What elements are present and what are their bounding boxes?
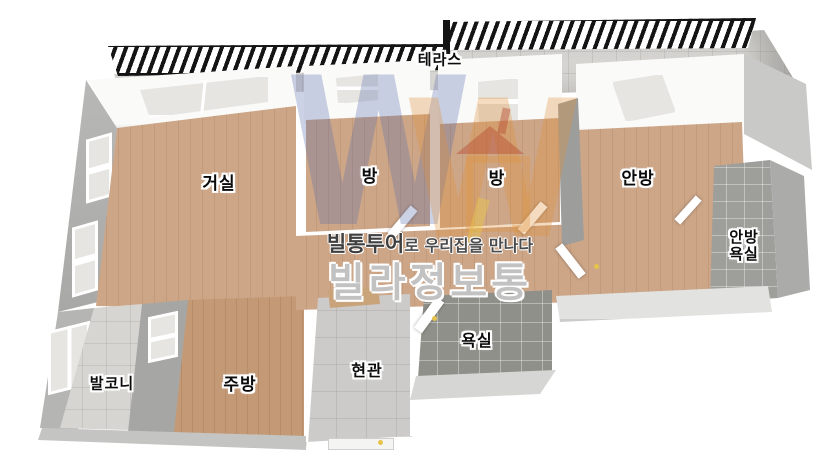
living-left-window-2: [72, 220, 98, 297]
label-kitchen: 주방: [223, 376, 256, 396]
label-room2: 방: [489, 170, 506, 190]
bath-door-handle: [432, 316, 437, 321]
kitchen-balcony-window: [148, 311, 178, 363]
label-master: 안방: [621, 170, 654, 190]
label-masterbath: 안방 욕실: [729, 229, 759, 264]
label-living: 거실: [202, 175, 235, 195]
floorplan-canvas: W W 빌통투어로 우리집을 만나다 빌라정보통 테라스 거실 방 방 안방 안…: [0, 0, 840, 472]
front-door: [328, 438, 394, 450]
living-left-window-1: [86, 132, 112, 203]
label-terrace: 테라스: [418, 51, 462, 68]
kitchen-floor: [170, 294, 306, 440]
front-door-handle: [378, 440, 383, 445]
label-entrance: 현관: [351, 362, 382, 380]
label-bath: 욕실: [461, 332, 492, 350]
logo-house-roof-icon: [456, 126, 524, 154]
label-balcony: 발코니: [90, 375, 134, 392]
watermark-big-text: 빌라정보통: [250, 250, 610, 308]
label-room1: 방: [362, 168, 379, 188]
